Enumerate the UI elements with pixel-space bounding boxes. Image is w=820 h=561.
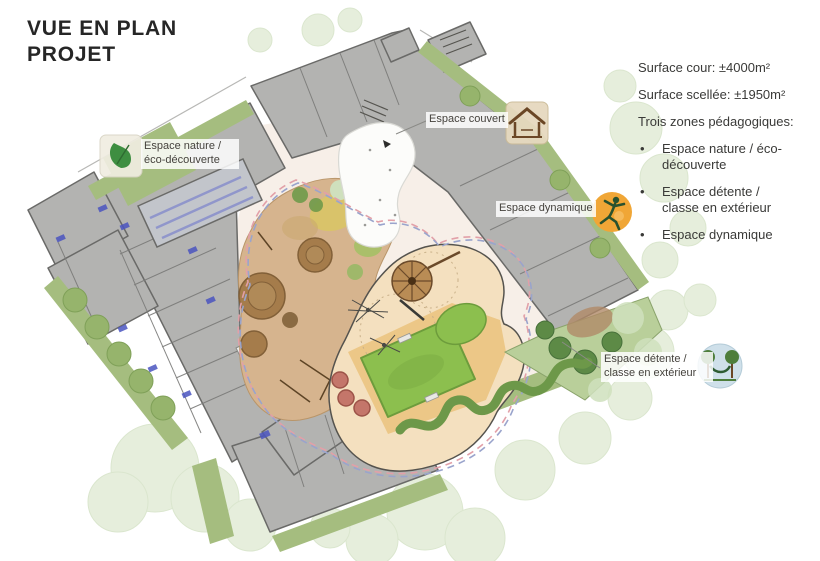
page-title-line1: VUE EN PLAN [27, 16, 177, 42]
shelter-icon [506, 102, 548, 144]
legend-label: Espace dynamique [662, 227, 784, 243]
bullet-icon: • [640, 141, 662, 174]
legend-label: Espace détente / classe en extérieur [662, 184, 784, 217]
site-plan-page: VUE EN PLAN PROJET Surface cour: ±4000m²… [0, 0, 820, 561]
leaf-icon [100, 135, 142, 177]
jumping-figure-icon [592, 192, 632, 232]
legend-label: Espace nature / éco-découverte [662, 141, 784, 174]
bullet-icon: • [640, 184, 662, 217]
legend-item-nature: • Espace nature / éco-découverte [640, 141, 784, 174]
stat-surface-cour: Surface cour: ±4000m² [638, 60, 770, 75]
legend-item-dynamique: • Espace dynamique [640, 227, 784, 243]
plan-label-couvert: Espace couvert [426, 112, 508, 128]
legend-item-detente: • Espace détente / classe en extérieur [640, 184, 784, 217]
page-title: VUE EN PLAN PROJET [27, 16, 177, 68]
site-plan-drawing [0, 0, 820, 561]
legend-heading: Trois zones pédagogiques: [638, 114, 794, 129]
plan-label-detente: Espace détente / classe en extérieur [601, 352, 713, 382]
plan-label-dynamique: Espace dynamique [496, 201, 596, 217]
page-title-line2: PROJET [27, 42, 177, 68]
plan-label-nature: Espace nature / éco-découverte [141, 139, 239, 169]
bullet-icon: • [640, 227, 662, 243]
stat-surface-scellee: Surface scellée: ±1950m² [638, 87, 785, 102]
